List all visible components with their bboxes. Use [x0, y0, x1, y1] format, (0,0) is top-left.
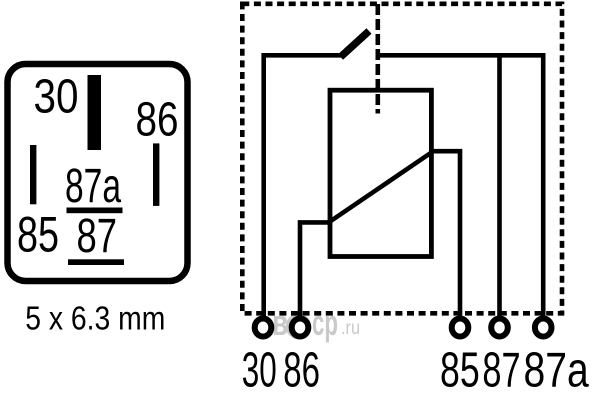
svg-text:87: 87 [77, 210, 118, 263]
svg-text:86: 86 [136, 94, 179, 147]
svg-text:87: 87 [482, 344, 520, 398]
svg-text:87a: 87a [65, 160, 121, 213]
svg-text:30: 30 [242, 344, 277, 398]
svg-text:85: 85 [440, 344, 480, 398]
svg-text:87a: 87a [524, 344, 590, 398]
svg-text:5 x 6.3 mm: 5 x 6.3 mm [25, 300, 165, 337]
svg-text:86: 86 [283, 344, 320, 398]
svg-text:ср: ср [312, 302, 338, 343]
svg-text:.ru: .ru [341, 318, 360, 339]
svg-text:85: 85 [17, 207, 59, 263]
svg-text:30: 30 [34, 71, 79, 124]
